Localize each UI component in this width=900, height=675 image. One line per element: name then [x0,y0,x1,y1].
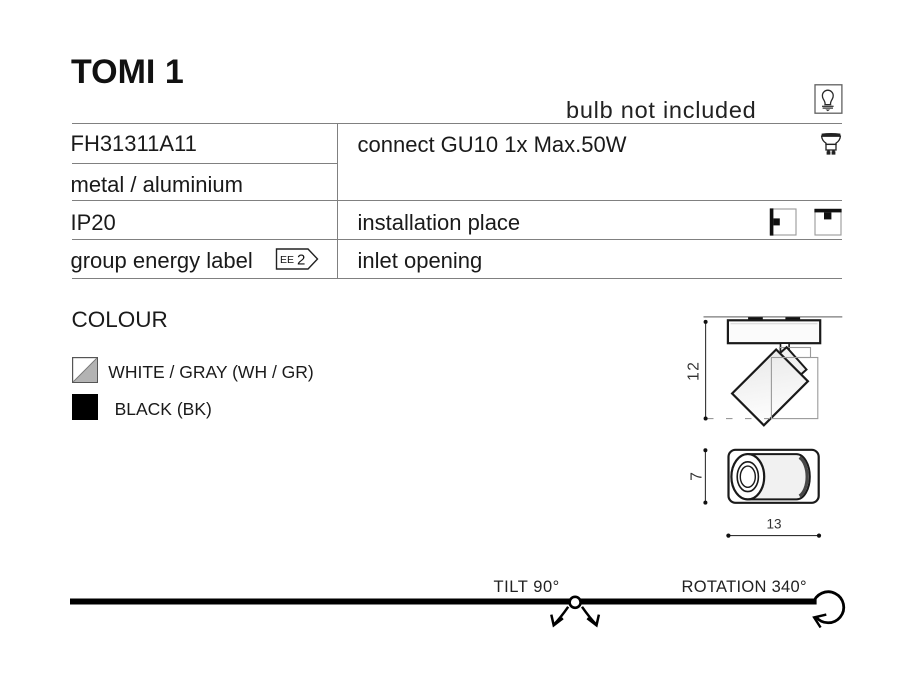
svg-text:EE: EE [280,254,294,266]
svg-text:2: 2 [297,251,305,268]
svg-text:7: 7 [688,472,705,481]
svg-text:13: 13 [766,517,781,532]
svg-text:12: 12 [686,361,703,381]
